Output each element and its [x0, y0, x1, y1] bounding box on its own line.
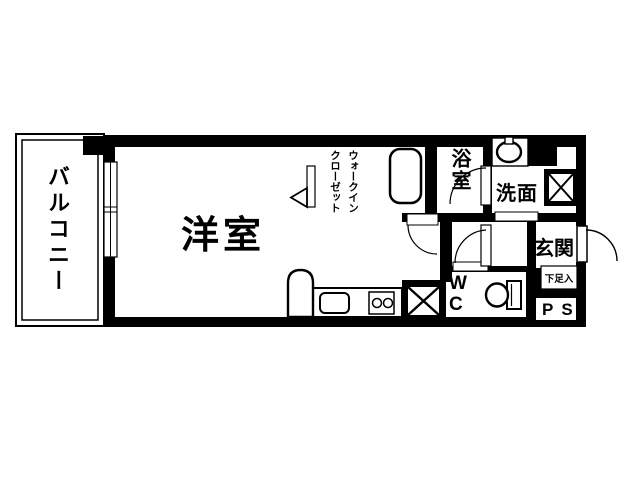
pipe-space-label: PS — [542, 300, 581, 320]
laundry-space-cross — [544, 169, 577, 206]
shoe-storage-label: 下足入 — [542, 271, 576, 285]
bathtub — [390, 149, 421, 203]
western-room-label: 洋室 — [181, 204, 265, 259]
duct-block — [528, 145, 557, 166]
walk-in-closet-label-right: ウォークイン — [347, 150, 358, 213]
toilet — [486, 281, 521, 309]
balcony-label: バルコニー — [41, 165, 73, 295]
wc-label: W C — [449, 273, 467, 315]
corridor-floor — [400, 222, 440, 282]
wash-basin — [492, 137, 528, 166]
washroom-label: 洗面 — [496, 177, 538, 206]
kitchen-sink — [320, 293, 349, 313]
floor-plan: バルコニー 洋室 ウォークイン クローゼット 浴室 洗面 玄関 W C 下足入 … — [0, 0, 640, 480]
walk-in-closet-floor — [318, 147, 372, 212]
entrance-label: 玄関 — [534, 232, 574, 261]
washing-machine-space-cross — [402, 280, 446, 322]
front-door — [577, 226, 617, 262]
bathroom-label: 浴室 — [445, 148, 474, 192]
walk-in-closet-label-left: クローゼット — [329, 150, 340, 213]
refrigerator-space — [288, 270, 313, 317]
two-burner-stove — [369, 292, 394, 314]
wall-stub — [440, 214, 452, 282]
kitchen-counter — [313, 288, 402, 317]
window — [104, 162, 117, 257]
